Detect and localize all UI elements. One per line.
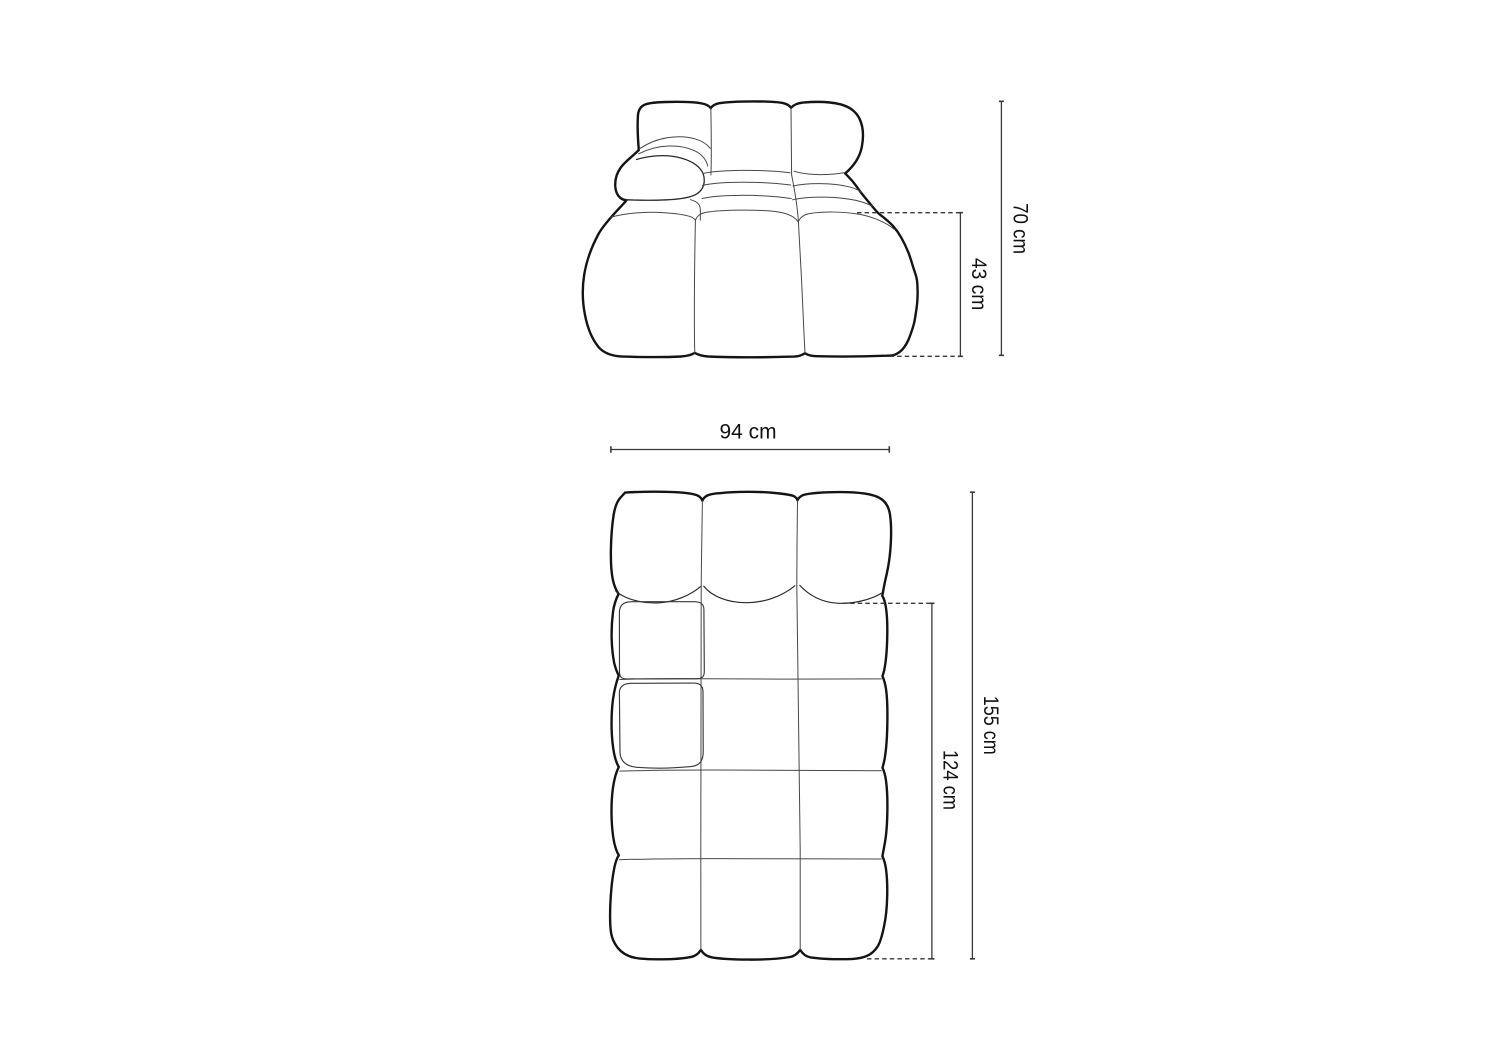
- svg-text:94 cm: 94 cm: [720, 420, 777, 443]
- svg-text:155 cm: 155 cm: [979, 696, 1002, 755]
- svg-text:124 cm: 124 cm: [939, 750, 962, 810]
- svg-text:43 cm: 43 cm: [967, 258, 990, 311]
- svg-text:70 cm: 70 cm: [1009, 203, 1032, 254]
